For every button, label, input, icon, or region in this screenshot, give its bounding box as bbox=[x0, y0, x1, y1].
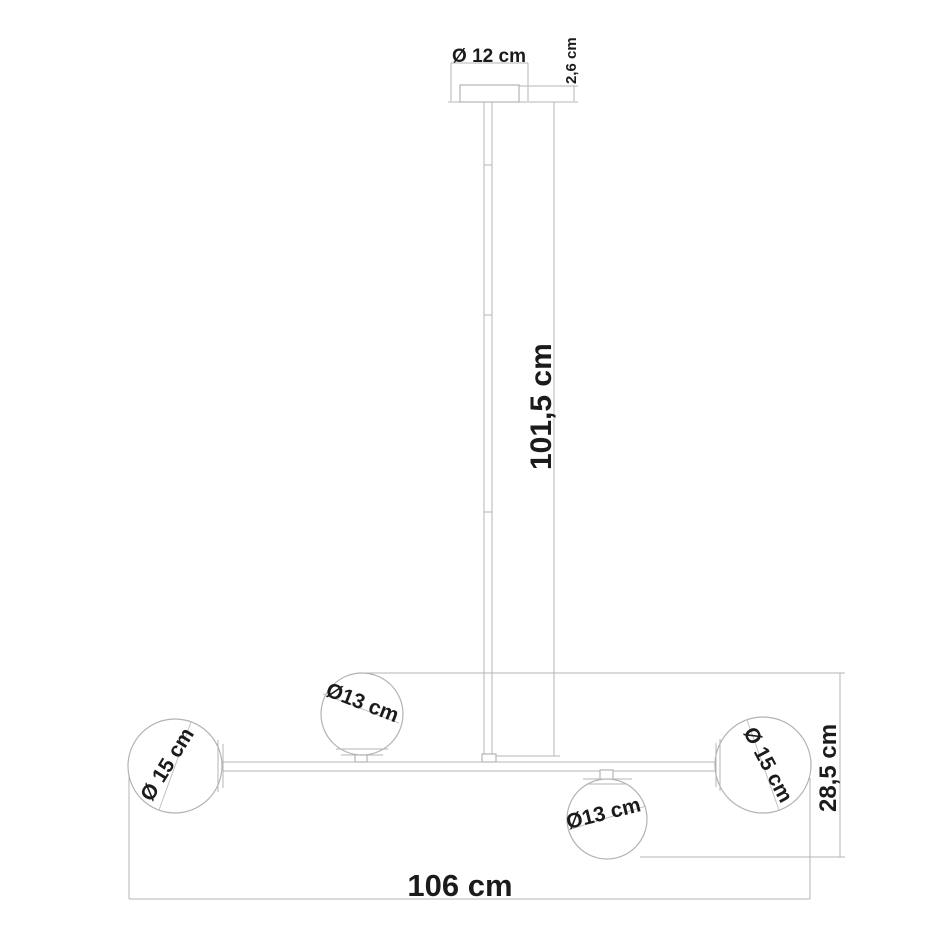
label-canopy-diameter: Ø 12 cm bbox=[452, 46, 526, 67]
label-total-width: 106 cm bbox=[407, 868, 512, 903]
horizontal-arm bbox=[223, 762, 715, 771]
label-rod-height: 101,5 cm bbox=[525, 343, 558, 470]
suspension-rod bbox=[482, 102, 496, 762]
label-fixture-height: 28,5 cm bbox=[815, 724, 842, 812]
label-canopy-height: 2,6 cm bbox=[563, 37, 580, 84]
canopy-cup bbox=[460, 85, 519, 102]
lamp-dimension-diagram: Ø 12 cm 2,6 cm 101,5 cm 28,5 cm 106 cm Ø… bbox=[0, 0, 945, 945]
ceiling-canopy bbox=[448, 85, 578, 102]
rod-bottom-connector bbox=[482, 754, 496, 762]
globe-top-neck bbox=[355, 755, 367, 762]
technical-drawing-canvas: Ø 12 cm 2,6 cm 101,5 cm 28,5 cm 106 cm Ø… bbox=[0, 0, 945, 945]
